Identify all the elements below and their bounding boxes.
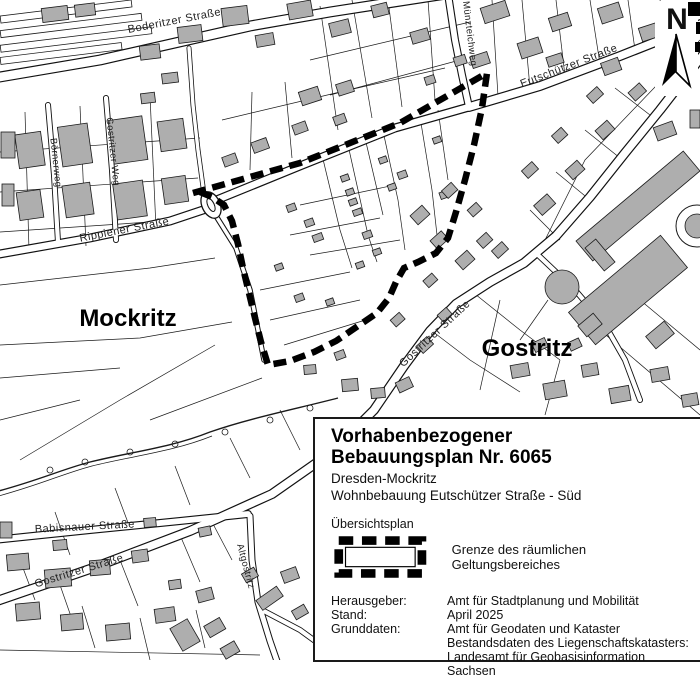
legend-credits: Herausgeber: Amt für Stadtplanung und Mo… [331, 594, 690, 678]
credit-row: Herausgeber: Amt für Stadtplanung und Mo… [331, 594, 690, 608]
north-arrow-label: N [666, 3, 688, 36]
credit-row: Grunddaten: Amt für Geodaten und Kataste… [331, 622, 690, 636]
plan-type-label: Übersichtsplan [331, 517, 690, 531]
plan-title-line2: Bebauungsplan Nr. 6065 [331, 447, 690, 468]
plan-title-line1: Vorhabenbezogener [331, 426, 690, 447]
plan-subtitle-project: Wohnbebauung Eutschützer Straße - Süd [331, 488, 690, 505]
place-labels: Mockritz Gostritz [79, 305, 572, 362]
boundary-symbol-label: Grenze des räumlichen Geltungsbereiches [452, 542, 690, 572]
place-label-gostritz: Gostritz [482, 335, 573, 362]
credit-key: Grunddaten: [331, 622, 447, 636]
credit-value: Landesamt für Geobasisinformation Sachse… [447, 650, 690, 678]
credit-key [331, 650, 447, 678]
place-label-mockritz: Mockritz [79, 305, 176, 332]
credit-key [331, 636, 447, 650]
credit-row: Bestandsdaten des Liegenschaftskatasters… [331, 636, 690, 650]
legend-symbol-row: Grenze des räumlichen Geltungsbereiches [331, 533, 690, 581]
credit-row: Stand: April 2025 [331, 608, 690, 622]
legend-panel: Vorhabenbezogener Bebauungsplan Nr. 6065… [313, 417, 700, 662]
plan-subtitle-district: Dresden-Mockritz [331, 471, 690, 488]
credit-value: Bestandsdaten des Liegenschaftskatasters… [447, 636, 690, 650]
credit-key: Herausgeber: [331, 594, 447, 608]
street-label-gostritzer-mid: Gostritzer Straße [397, 298, 473, 370]
credit-key: Stand: [331, 608, 447, 622]
credit-value: April 2025 [447, 608, 690, 622]
credit-value: Amt für Stadtplanung und Mobilität [447, 594, 690, 608]
boundary-symbol-icon [331, 533, 430, 581]
credit-value: Amt für Geodaten und Kataster [447, 622, 690, 636]
credit-row: Landesamt für Geobasisinformation Sachse… [331, 650, 690, 678]
street-label-rippiener: Rippiener Straße [79, 215, 171, 244]
